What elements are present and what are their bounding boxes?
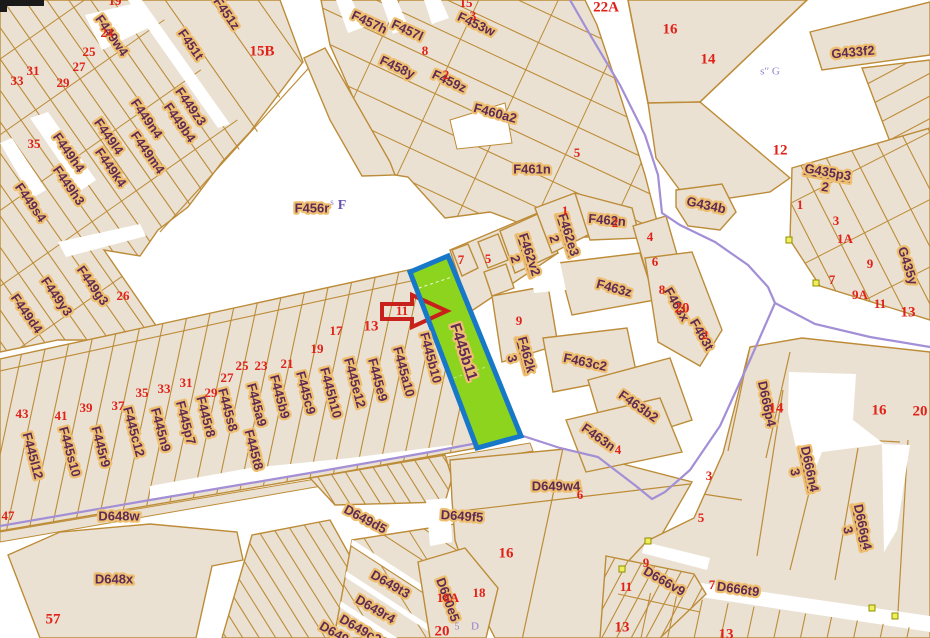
svg-text:20: 20 xyxy=(435,623,450,638)
svg-text:5: 5 xyxy=(455,621,460,632)
svg-text:33: 33 xyxy=(11,73,25,88)
svg-text:F: F xyxy=(338,198,347,213)
svg-text:1A: 1A xyxy=(837,231,854,246)
svg-text:8: 8 xyxy=(659,282,666,297)
svg-text:31: 31 xyxy=(27,63,40,78)
svg-text:17: 17 xyxy=(330,323,344,338)
svg-text:13: 13 xyxy=(719,626,734,638)
svg-text:7: 7 xyxy=(829,272,836,287)
svg-text:11: 11 xyxy=(396,303,408,318)
svg-text:D648x: D648x xyxy=(95,571,134,586)
svg-text:16: 16 xyxy=(872,402,888,418)
svg-text:sʹʹ G: sʹʹ G xyxy=(760,66,780,78)
svg-text:41: 41 xyxy=(55,408,68,423)
svg-text:D649f5: D649f5 xyxy=(440,507,484,525)
svg-text:24: 24 xyxy=(101,25,115,40)
svg-text:9: 9 xyxy=(867,256,874,271)
svg-text:37: 37 xyxy=(112,398,126,413)
svg-text:F456r: F456r xyxy=(295,200,330,215)
svg-text:4: 4 xyxy=(647,229,654,244)
svg-text:3: 3 xyxy=(833,213,840,228)
svg-text:11: 11 xyxy=(620,579,632,594)
svg-text:23: 23 xyxy=(255,358,269,373)
svg-text:26: 26 xyxy=(117,288,131,303)
svg-text:19: 19 xyxy=(109,0,123,8)
svg-text:22A: 22A xyxy=(593,0,619,15)
svg-text:18: 18 xyxy=(473,585,487,600)
svg-text:19: 19 xyxy=(311,341,325,356)
svg-text:5: 5 xyxy=(698,510,705,525)
svg-text:3: 3 xyxy=(706,468,713,483)
svg-text:3: 3 xyxy=(470,8,477,23)
svg-text:7: 7 xyxy=(458,252,465,267)
svg-text:6: 6 xyxy=(652,254,659,269)
svg-text:16: 16 xyxy=(663,21,679,37)
svg-text:31: 31 xyxy=(180,375,193,390)
svg-text:47: 47 xyxy=(2,508,16,523)
svg-text:5: 5 xyxy=(574,145,581,160)
svg-text:16: 16 xyxy=(499,545,515,561)
svg-text:F461n: F461n xyxy=(513,161,551,176)
svg-text:29: 29 xyxy=(205,385,219,400)
svg-text:14: 14 xyxy=(701,51,717,67)
svg-text:11: 11 xyxy=(874,296,886,311)
svg-text:D648w: D648w xyxy=(98,508,140,523)
svg-text:8: 8 xyxy=(422,43,429,58)
svg-text:35: 35 xyxy=(136,385,150,400)
svg-text:13: 13 xyxy=(615,619,630,635)
svg-text:D: D xyxy=(471,621,479,633)
svg-text:s: s xyxy=(330,197,334,207)
svg-text:20: 20 xyxy=(675,300,690,316)
svg-text:13: 13 xyxy=(364,318,379,334)
svg-text:25: 25 xyxy=(236,358,250,373)
svg-text:6: 6 xyxy=(577,487,584,502)
svg-text:39: 39 xyxy=(80,400,94,415)
svg-text:2: 2 xyxy=(443,67,450,82)
svg-text:57: 57 xyxy=(46,611,62,627)
svg-text:20: 20 xyxy=(913,403,928,419)
svg-text:12: 12 xyxy=(773,142,788,158)
svg-text:18A: 18A xyxy=(437,590,460,605)
svg-text:27: 27 xyxy=(73,59,87,74)
svg-text:9: 9 xyxy=(516,313,523,328)
svg-text:4: 4 xyxy=(615,442,622,457)
svg-text:43: 43 xyxy=(16,406,30,421)
svg-text:14: 14 xyxy=(769,400,785,416)
svg-text:5: 5 xyxy=(485,251,492,266)
svg-text:25: 25 xyxy=(83,44,97,59)
svg-text:2: 2 xyxy=(702,327,709,342)
svg-text:1: 1 xyxy=(797,197,804,212)
svg-text:29: 29 xyxy=(57,75,71,90)
svg-text:13: 13 xyxy=(901,304,916,320)
svg-text:21: 21 xyxy=(281,356,294,371)
svg-text:9: 9 xyxy=(643,555,650,570)
svg-text:35: 35 xyxy=(28,136,42,151)
svg-text:2: 2 xyxy=(612,215,619,230)
svg-text:33: 33 xyxy=(158,381,172,396)
svg-text:27: 27 xyxy=(221,370,235,385)
svg-text:9A: 9A xyxy=(852,287,869,302)
svg-text:15B: 15B xyxy=(249,43,274,59)
svg-text:1: 1 xyxy=(562,203,569,218)
svg-text:7: 7 xyxy=(709,577,716,592)
svg-text:D649w4: D649w4 xyxy=(532,478,581,493)
